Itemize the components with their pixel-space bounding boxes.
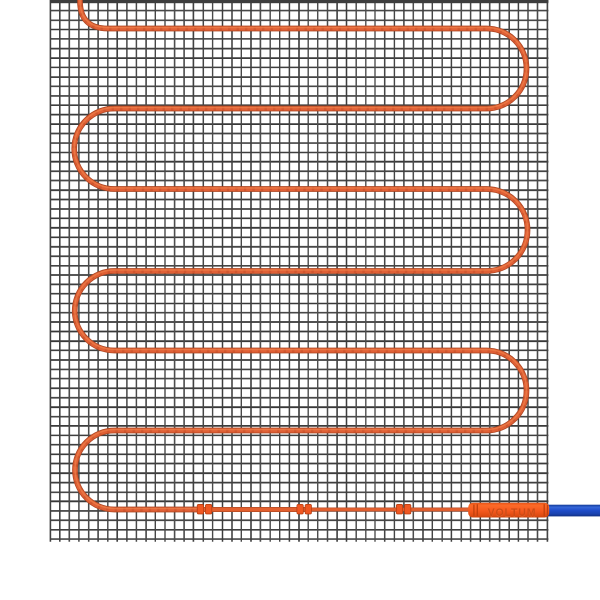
svg-text:VOLTUM: VOLTUM [488, 507, 537, 519]
